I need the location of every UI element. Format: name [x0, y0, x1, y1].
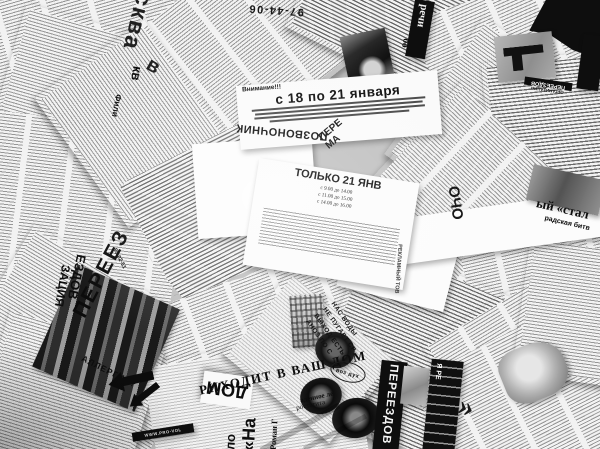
pereezdov-vertical-headline: ПЕРЕЕЗДОВ — [379, 363, 399, 448]
small-photo-fragment — [400, 366, 430, 407]
pistol-silhouette — [503, 44, 545, 72]
newspaper-collage-photo: Внимание!!! с 18 по 21 января ТОЛЬКО 21 … — [0, 0, 600, 449]
lo-letters: ло — [223, 424, 237, 449]
rechi-headline: речи — [410, 3, 430, 54]
pistol-photo-fragment — [494, 31, 556, 83]
na-quote-letters: «На — [239, 406, 259, 449]
ya-re-label: Я РЕ — [432, 363, 442, 396]
vozduh-label: воз дух — [335, 368, 360, 380]
